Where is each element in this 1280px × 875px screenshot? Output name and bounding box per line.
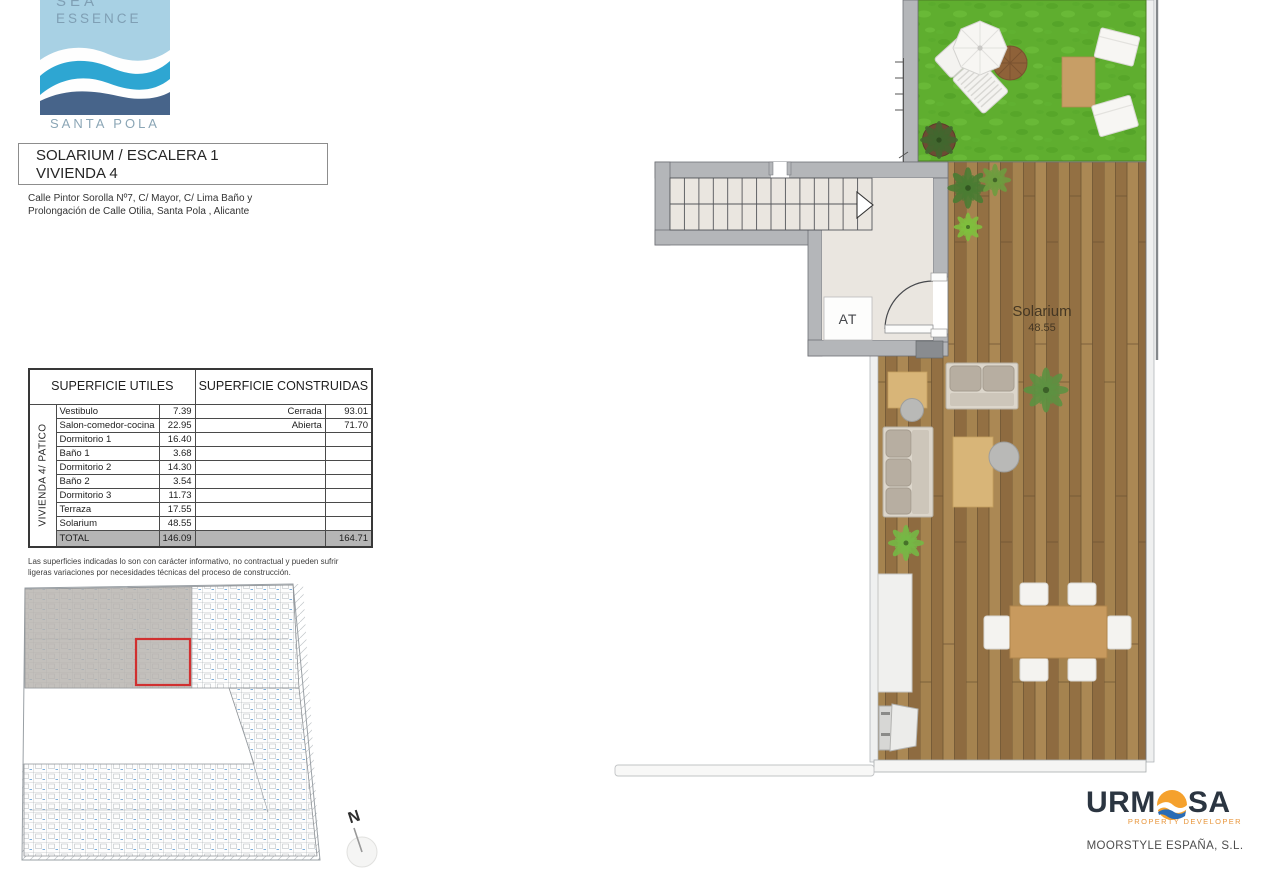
outdoor-rug bbox=[953, 437, 993, 507]
legal-disclaimer: Las superficies indicadas lo son con car… bbox=[28, 557, 368, 578]
construida-value bbox=[325, 460, 372, 474]
wall-stair-bottom bbox=[655, 230, 822, 245]
construida-label bbox=[195, 474, 325, 488]
room-name: Salon-comedor-cocina bbox=[56, 418, 159, 432]
room-area: 3.54 bbox=[159, 474, 195, 488]
room-name: Dormitorio 1 bbox=[56, 432, 159, 446]
parasol bbox=[953, 21, 1007, 75]
outdoor-sink bbox=[879, 704, 918, 751]
room-area-label: 48.55 bbox=[1028, 322, 1056, 334]
deck-bottom-wall bbox=[874, 760, 1146, 772]
construida-label: Abierta bbox=[195, 418, 325, 432]
construida-label bbox=[195, 432, 325, 446]
wall-hall-right bbox=[933, 178, 948, 277]
row-group-label: VIVIENDA 4/ PATICO bbox=[37, 424, 48, 527]
floor-plan: AT bbox=[600, 0, 1180, 790]
room-name: Dormitorio 3 bbox=[56, 488, 159, 502]
plan-sheet: SEA ESSENCE SANTA POLA SOLARIUM / ESCALE… bbox=[0, 0, 1280, 875]
north-label: N bbox=[346, 808, 362, 828]
room-name: Baño 1 bbox=[56, 446, 159, 460]
dining-chair bbox=[984, 616, 1010, 649]
total-spacer bbox=[195, 530, 325, 547]
dining-table bbox=[1010, 606, 1107, 658]
room-name: Baño 2 bbox=[56, 474, 159, 488]
construida-label bbox=[195, 516, 325, 530]
table-row: Baño 1 3.68 bbox=[29, 446, 372, 460]
construida-value bbox=[325, 446, 372, 460]
construida-label: Cerrada bbox=[195, 404, 325, 418]
roof-hatch-gap bbox=[771, 162, 789, 178]
construida-value bbox=[325, 432, 372, 446]
construida-label bbox=[195, 446, 325, 460]
construida-label bbox=[195, 502, 325, 516]
sofa-three-seat bbox=[883, 427, 933, 517]
construida-value: 71.70 bbox=[325, 418, 372, 432]
deck-left-edge bbox=[870, 355, 878, 762]
construida-value: 93.01 bbox=[325, 404, 372, 418]
deck-plant bbox=[954, 213, 983, 242]
sheet-title-line2: VIVIENDA 4 bbox=[36, 165, 327, 183]
elevator: AT bbox=[824, 297, 872, 340]
logo-location-label: SANTA POLA bbox=[40, 116, 170, 131]
side-table-round bbox=[901, 399, 924, 422]
surface-areas-table: SUPERFICIE UTILES SUPERFICIE CONSTRUIDAS… bbox=[28, 368, 373, 548]
door-leaf bbox=[885, 325, 933, 333]
logo-word: ESSENCE bbox=[56, 11, 142, 26]
site-plan-minimap bbox=[20, 582, 324, 864]
logo-top-word: SEA bbox=[56, 0, 98, 10]
room-area: 16.40 bbox=[159, 432, 195, 446]
room-area: 3.68 bbox=[159, 446, 195, 460]
corner-pillar bbox=[916, 341, 943, 358]
header-superficie-utiles: SUPERFICIE UTILES bbox=[29, 369, 195, 404]
coffee-table-round bbox=[989, 442, 1019, 472]
table-total-row: TOTAL 146.09 164.71 bbox=[29, 530, 372, 547]
sofa-two-seat bbox=[946, 363, 1018, 409]
table-header-row: SUPERFICIE UTILES SUPERFICIE CONSTRUIDAS bbox=[29, 369, 372, 404]
project-address: Calle Pintor Sorolla Nº7, C/ Mayor, C/ L… bbox=[28, 192, 358, 218]
table-row: Solarium 48.55 bbox=[29, 516, 372, 530]
construida-label bbox=[195, 460, 325, 474]
potted-agave bbox=[920, 121, 958, 159]
deck-right-edge bbox=[1146, 0, 1154, 762]
table-row: Dormitorio 2 14.30 bbox=[29, 460, 372, 474]
table-row: VIVIENDA 4/ PATICO Vestibulo 7.39 Cerrad… bbox=[29, 404, 372, 418]
disclaimer-line1: Las superficies indicadas lo son con car… bbox=[28, 557, 368, 568]
dining-chair bbox=[1068, 583, 1096, 605]
developer-logo-row: URM SA bbox=[1086, 786, 1242, 820]
elevator-label: AT bbox=[839, 311, 858, 327]
address-line1: Calle Pintor Sorolla Nº7, C/ Mayor, C/ L… bbox=[28, 192, 358, 205]
total-label: TOTAL bbox=[56, 530, 159, 547]
header-superficie-construidas: SUPERFICIE CONSTRUIDAS bbox=[195, 369, 372, 404]
sea-essence-logo: SEA ESSENCE bbox=[40, 0, 170, 115]
wall-stair-top bbox=[655, 162, 948, 178]
room-area: 48.55 bbox=[159, 516, 195, 530]
room-area: 14.30 bbox=[159, 460, 195, 474]
construida-label bbox=[195, 488, 325, 502]
room-area: 22.95 bbox=[159, 418, 195, 432]
dining-chair bbox=[1020, 583, 1048, 605]
door-hinge bbox=[931, 329, 947, 337]
dining-chair bbox=[1020, 658, 1048, 681]
door-hinge bbox=[931, 273, 947, 281]
construida-value bbox=[325, 488, 372, 502]
developer-company: MOORSTYLE ESPAÑA, S.L. bbox=[1084, 840, 1246, 852]
adjacent-block-shaded bbox=[25, 587, 192, 688]
north-arrow: N bbox=[336, 806, 388, 874]
construida-value bbox=[325, 502, 372, 516]
roof-hatch-tab bbox=[769, 162, 773, 175]
deck-plant bbox=[1024, 368, 1069, 413]
room-name: Dormitorio 2 bbox=[56, 460, 159, 474]
roof-hatch-tab bbox=[787, 162, 791, 175]
disclaimer-line2: ligeras variaciones por necesidades técn… bbox=[28, 568, 368, 579]
deck-plant bbox=[888, 525, 924, 561]
table-row: Baño 2 3.54 bbox=[29, 474, 372, 488]
construida-value bbox=[325, 474, 372, 488]
address-line2: Prolongación de Calle Otilia, Santa Pola… bbox=[28, 205, 358, 218]
construida-value bbox=[325, 516, 372, 530]
deck-plant bbox=[947, 167, 988, 208]
room-area: 7.39 bbox=[159, 404, 195, 418]
room-name: Vestibulo bbox=[56, 404, 159, 418]
room-area: 17.55 bbox=[159, 502, 195, 516]
table-row: Terraza 17.55 bbox=[29, 502, 372, 516]
terrace-parapet bbox=[615, 765, 874, 776]
deck-plant bbox=[979, 164, 1011, 196]
wall-hall-left bbox=[808, 230, 822, 356]
sheet-title-box: SOLARIUM / ESCALERA 1 VIVIENDA 4 bbox=[18, 143, 328, 185]
outdoor-counter bbox=[878, 574, 912, 692]
row-group-cell: VIVIENDA 4/ PATICO bbox=[29, 404, 56, 547]
table-row: Dormitorio 3 11.73 bbox=[29, 488, 372, 502]
table-row: Salon-comedor-cocina 22.95 Abierta 71.70 bbox=[29, 418, 372, 432]
total-utiles: 146.09 bbox=[159, 530, 195, 547]
developer-name-right: SA bbox=[1188, 786, 1231, 820]
dining-chair bbox=[1068, 658, 1096, 681]
sheet-title-line1: SOLARIUM / ESCALERA 1 bbox=[36, 147, 327, 165]
room-name: Solarium bbox=[56, 516, 159, 530]
total-construidas: 164.71 bbox=[325, 530, 372, 547]
table-row: Dormitorio 1 16.40 bbox=[29, 432, 372, 446]
dining-chair bbox=[1107, 616, 1131, 649]
room-area: 11.73 bbox=[159, 488, 195, 502]
stair-hall-floor bbox=[670, 178, 933, 340]
developer-name-left: URM bbox=[1086, 786, 1156, 820]
wall-grass-left bbox=[903, 0, 918, 162]
grass-mat bbox=[1062, 57, 1095, 107]
room-name: Terraza bbox=[56, 502, 159, 516]
room-name-label: Solarium bbox=[1012, 303, 1071, 320]
developer-logo: URM SA PROPERTY DEVELOPER bbox=[1086, 786, 1242, 826]
